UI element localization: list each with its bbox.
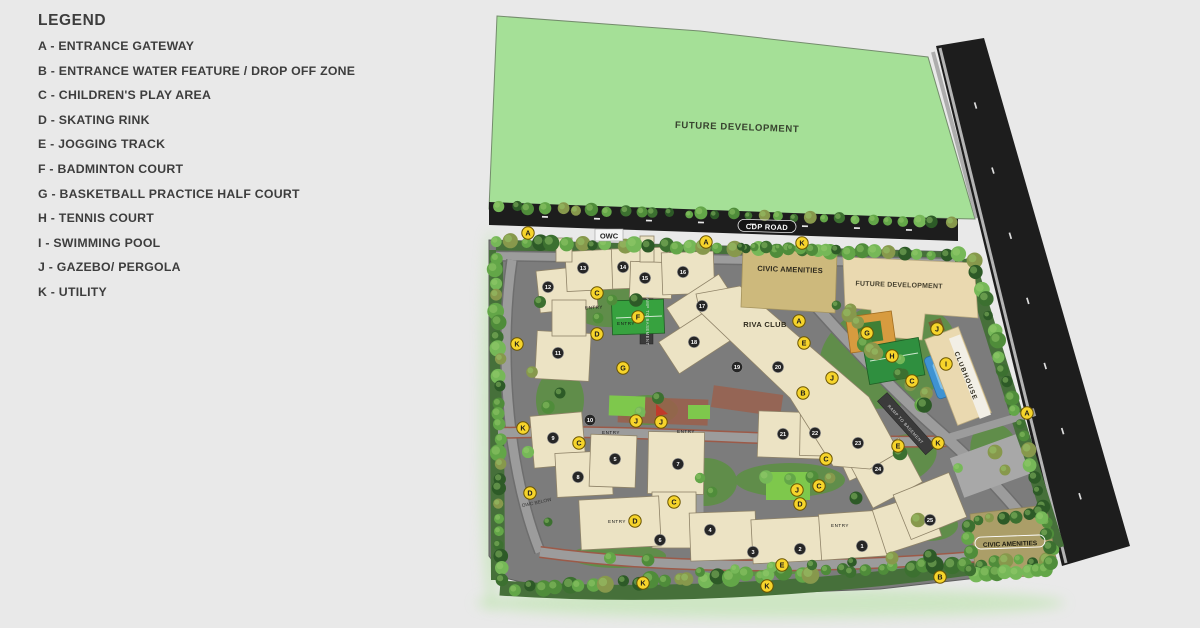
map-marker-letter: A xyxy=(703,238,708,247)
tower-number: 24 xyxy=(875,467,882,473)
tree-icon xyxy=(745,213,749,217)
tree-icon xyxy=(586,204,593,211)
legend-item-d: D - SKATING RINK xyxy=(38,114,355,127)
tree-icon xyxy=(528,368,534,374)
legend-panel: LEGEND A - ENTRANCE GATEWAYB - ENTRANCE … xyxy=(38,12,355,311)
map-marker-letter: D xyxy=(594,330,599,339)
road-dash xyxy=(542,216,548,218)
tree-icon xyxy=(838,564,844,570)
tree-icon xyxy=(921,388,927,394)
tree-icon xyxy=(494,419,500,425)
tower-number: 9 xyxy=(551,436,554,442)
tree-icon xyxy=(661,239,668,246)
tree-icon xyxy=(523,204,529,210)
tree-icon xyxy=(493,316,501,324)
tree-icon xyxy=(492,371,499,378)
map-marker-letter: E xyxy=(896,442,901,451)
road-dash xyxy=(854,227,860,229)
tower-number: 25 xyxy=(927,518,933,524)
tree-icon xyxy=(496,435,502,441)
map-marker-letter: D xyxy=(527,489,532,498)
legend-item-c: C - CHILDREN'S PLAY AREA xyxy=(38,89,355,102)
tree-icon xyxy=(884,218,888,222)
map-marker-letter: J xyxy=(634,417,638,426)
map-marker-letter: E xyxy=(802,339,807,348)
map-marker-letter: E xyxy=(780,561,785,570)
tree-icon xyxy=(643,555,649,561)
tree-icon xyxy=(1024,460,1031,467)
tree-icon xyxy=(835,213,841,219)
ramp-label-1: RAMP TO BASEMENT xyxy=(645,294,650,345)
tree-icon xyxy=(496,382,501,387)
tree-icon xyxy=(523,239,528,244)
tower-number: 21 xyxy=(780,432,786,438)
tower-number: 12 xyxy=(545,285,551,291)
tree-icon xyxy=(681,574,688,581)
entry-label: ENTRY xyxy=(608,519,626,524)
tree-icon xyxy=(696,474,701,479)
tree-icon xyxy=(887,553,893,559)
map-marker-letter: K xyxy=(799,239,805,248)
tree-icon xyxy=(774,212,779,217)
tree-icon xyxy=(636,408,641,413)
tree-icon xyxy=(622,207,628,213)
tree-icon xyxy=(984,312,989,317)
tree-icon xyxy=(821,245,827,251)
road-dash xyxy=(646,220,652,222)
tree-icon xyxy=(1000,555,1007,562)
tree-icon xyxy=(544,518,549,523)
tree-icon xyxy=(492,332,499,339)
tower-number: 22 xyxy=(812,431,818,437)
tree-icon xyxy=(671,243,678,250)
tree-icon xyxy=(946,559,955,568)
tree-icon xyxy=(953,248,961,256)
tree-icon xyxy=(947,218,953,224)
map-marker-letter: B xyxy=(937,573,942,582)
tree-icon xyxy=(1037,513,1043,519)
tree-icon xyxy=(494,399,500,405)
map-marker-letter: H xyxy=(889,352,894,361)
map-marker-letter: K xyxy=(935,439,941,448)
tree-icon xyxy=(966,547,973,554)
tree-icon xyxy=(1034,487,1039,492)
tree-icon xyxy=(761,242,767,248)
tree-icon xyxy=(1001,466,1006,471)
tree-icon xyxy=(599,578,607,586)
map-marker-letter: J xyxy=(795,486,799,495)
tree-icon xyxy=(489,263,497,271)
tree-icon xyxy=(489,305,497,313)
tree-icon xyxy=(540,204,546,210)
tree-icon xyxy=(491,279,497,285)
tree-icon xyxy=(1023,566,1030,573)
tree-icon xyxy=(561,239,568,246)
tree-icon xyxy=(492,237,497,242)
tree-icon xyxy=(648,208,653,213)
tree-icon xyxy=(1032,565,1039,572)
road-dash xyxy=(906,229,912,231)
tree-icon xyxy=(556,389,562,395)
entry-label: ENTRY xyxy=(585,305,603,311)
tree-icon xyxy=(999,566,1006,573)
tree-icon xyxy=(686,212,690,216)
tree-icon xyxy=(608,296,613,301)
tower-number: 1 xyxy=(860,544,863,550)
tower-number: 8 xyxy=(576,475,579,481)
tree-icon xyxy=(853,317,859,323)
tree-icon xyxy=(976,284,984,292)
tree-icon xyxy=(708,488,713,493)
tree-icon xyxy=(822,566,827,571)
road-dash xyxy=(698,222,704,224)
tree-icon xyxy=(724,571,733,580)
tree-icon xyxy=(549,581,556,588)
tree-icon xyxy=(954,464,959,469)
tree-icon xyxy=(761,472,768,479)
map-marker-letter: K xyxy=(514,340,520,349)
tree-icon xyxy=(738,244,742,248)
legend-list: A - ENTRANCE GATEWAYB - ENTRANCE WATER F… xyxy=(38,40,355,299)
tower-number: 10 xyxy=(587,418,593,424)
riva-club-label: RIVA CLUB xyxy=(743,320,787,329)
tower-number: 18 xyxy=(691,340,697,346)
map-marker-letter: A xyxy=(525,229,530,238)
tree-icon xyxy=(870,216,875,221)
tree-icon xyxy=(545,237,553,245)
tree-icon xyxy=(504,235,512,243)
tree-icon xyxy=(851,216,856,221)
tree-icon xyxy=(833,302,838,307)
legend-title: LEGEND xyxy=(38,12,355,30)
tree-icon xyxy=(1030,472,1036,478)
tree-icon xyxy=(493,409,500,416)
tree-icon xyxy=(968,254,976,262)
tree-icon xyxy=(989,325,996,332)
tree-icon xyxy=(900,248,907,255)
tree-icon xyxy=(912,250,918,256)
legend-item-i: I - SWIMMING POOL xyxy=(38,237,355,250)
legend-item-e: E - JOGGING TRACK xyxy=(38,138,355,151)
map-marker-letter: K xyxy=(640,579,646,588)
tree-icon xyxy=(653,393,659,399)
tree-icon xyxy=(980,293,988,301)
tree-icon xyxy=(751,244,755,248)
tree-icon xyxy=(494,202,500,208)
tree-icon xyxy=(696,568,701,573)
tree-icon xyxy=(879,565,884,570)
map-marker-letter: D xyxy=(797,500,802,509)
tree-icon xyxy=(1010,406,1016,412)
legend-item-h: H - TENNIS COURT xyxy=(38,212,355,225)
map-marker-letter: J xyxy=(935,325,939,334)
tower-number: 13 xyxy=(580,266,586,272)
tree-icon xyxy=(564,579,572,587)
tree-icon xyxy=(906,563,914,571)
map-marker-letter: A xyxy=(796,317,801,326)
tree-icon xyxy=(986,514,991,519)
cdp-road-label: CDP ROAD xyxy=(746,222,789,232)
tree-icon xyxy=(711,570,719,578)
tree-icon xyxy=(1015,556,1020,561)
tree-icon xyxy=(496,459,502,465)
map-marker-letter: I xyxy=(945,360,947,369)
legend-item-f: F - BADMINTON COURT xyxy=(38,163,355,176)
tower-number: 11 xyxy=(555,351,561,357)
tower-number: 17 xyxy=(699,304,705,310)
tree-icon xyxy=(966,566,972,572)
tree-icon xyxy=(577,238,584,245)
tree-icon xyxy=(638,208,643,213)
tree-icon xyxy=(643,241,650,248)
tree-icon xyxy=(768,563,773,568)
tree-icon xyxy=(977,561,983,567)
tree-icon xyxy=(543,402,550,409)
tree-icon xyxy=(808,561,813,566)
tree-icon xyxy=(989,446,996,453)
tree-icon xyxy=(526,581,532,587)
tree-icon xyxy=(495,474,501,480)
tree-icon xyxy=(494,500,499,505)
tree-icon xyxy=(981,568,989,576)
tree-icon xyxy=(1006,392,1013,399)
tree-icon xyxy=(848,558,853,563)
tower-number: 16 xyxy=(680,270,686,276)
entry-label: ENTRY xyxy=(617,321,635,326)
tree-icon xyxy=(917,560,924,567)
entry-label: ENTRY xyxy=(602,430,620,435)
map-marker-letter: J xyxy=(659,418,663,427)
road-dash xyxy=(802,225,808,227)
map-marker-letter: A xyxy=(1024,409,1029,418)
tree-icon xyxy=(492,446,500,454)
tree-icon xyxy=(963,533,970,540)
tree-icon xyxy=(927,252,932,257)
tree-icon xyxy=(912,514,919,521)
tree-icon xyxy=(963,521,970,528)
tree-icon xyxy=(491,290,497,296)
tree-icon xyxy=(619,576,625,582)
tree-icon xyxy=(975,517,980,522)
tree-icon xyxy=(1045,557,1052,564)
tree-icon xyxy=(805,212,811,218)
tree-icon xyxy=(603,208,608,213)
tree-icon xyxy=(510,586,516,592)
tree-icon xyxy=(895,369,901,375)
tree-icon xyxy=(631,295,638,302)
tree-icon xyxy=(786,475,792,481)
tree-icon xyxy=(872,348,879,355)
legend-item-b: B - ENTRANCE WATER FEATURE / DROP OFF ZO… xyxy=(38,65,355,78)
tree-icon xyxy=(1028,559,1033,564)
tree-icon xyxy=(513,202,518,207)
entry-label: ENTRY xyxy=(831,523,849,528)
tree-icon xyxy=(728,243,736,251)
tree-icon xyxy=(573,581,579,587)
tree-icon xyxy=(495,550,502,557)
tree-icon xyxy=(731,565,736,570)
tree-icon xyxy=(959,559,966,566)
tower-number: 6 xyxy=(658,538,661,544)
tree-icon xyxy=(1017,420,1022,425)
tree-icon xyxy=(915,216,921,222)
tree-icon xyxy=(925,551,932,558)
tree-icon xyxy=(821,215,825,219)
tree-icon xyxy=(666,209,671,214)
tree-icon xyxy=(832,246,837,251)
tree-icon xyxy=(492,254,498,260)
tree-icon xyxy=(1025,510,1031,516)
tree-icon xyxy=(497,563,504,570)
civic-amenities-top-area xyxy=(741,249,837,313)
tower-number: 3 xyxy=(751,550,754,556)
tower-number: 5 xyxy=(613,457,616,463)
tree-icon xyxy=(729,209,735,215)
tree-icon xyxy=(594,314,599,319)
tree-icon xyxy=(572,207,577,212)
tree-icon xyxy=(791,215,795,219)
legend-item-g: G - BASKETBALL PRACTICE HALF COURT xyxy=(38,188,355,201)
map-marker-letter: K xyxy=(764,582,770,591)
map-marker-letter: B xyxy=(800,389,805,398)
building-block xyxy=(552,300,586,336)
tree-icon xyxy=(1020,432,1025,437)
map-marker-letter: G xyxy=(620,364,626,373)
tree-icon xyxy=(991,334,999,342)
tree-icon xyxy=(534,236,542,244)
tree-icon xyxy=(843,309,851,317)
tree-icon xyxy=(491,342,499,350)
tower-number: 14 xyxy=(620,265,627,271)
legend-item-k: K - UTILITY xyxy=(38,286,355,299)
tree-icon xyxy=(994,353,1000,359)
building-block xyxy=(689,511,757,561)
tree-icon xyxy=(776,245,780,249)
map-marker-letter: D xyxy=(632,517,637,526)
map-marker-letter: C xyxy=(594,289,599,298)
tree-icon xyxy=(883,247,890,254)
tree-icon xyxy=(970,266,977,273)
road-dash xyxy=(594,218,600,220)
tree-icon xyxy=(559,204,565,210)
tree-icon xyxy=(494,541,499,546)
tree-icon xyxy=(788,245,792,249)
map-marker-letter: C xyxy=(576,439,581,448)
map-marker-letter: C xyxy=(909,377,914,386)
map-marker-letter: C xyxy=(671,498,676,507)
tree-icon xyxy=(807,472,813,478)
map-marker-letter: G xyxy=(864,329,870,338)
tree-icon xyxy=(899,218,904,223)
map-marker-letter: F xyxy=(636,313,641,322)
tree-icon xyxy=(537,582,545,590)
tree-icon xyxy=(523,447,529,453)
entry-label: ENTRY xyxy=(677,429,695,434)
tree-icon xyxy=(869,246,876,253)
tree-icon xyxy=(843,248,850,255)
tree-icon xyxy=(861,566,867,572)
tree-icon xyxy=(588,580,595,587)
tree-icon xyxy=(711,211,716,216)
tree-icon xyxy=(497,575,503,581)
tree-icon xyxy=(760,211,766,217)
tree-icon xyxy=(926,217,932,223)
tree-icon xyxy=(999,513,1005,519)
tree-icon xyxy=(1003,377,1009,383)
tower-number: 19 xyxy=(734,365,740,371)
tree-icon xyxy=(740,568,747,575)
tree-icon xyxy=(918,399,926,407)
tree-icon xyxy=(1045,542,1052,549)
tree-icon xyxy=(605,553,611,559)
tree-icon xyxy=(495,528,500,533)
tree-icon xyxy=(942,250,948,256)
tree-icon xyxy=(493,483,500,490)
tree-icon xyxy=(713,244,718,249)
legend-item-j: J - GAZEBO/ PERGOLA xyxy=(38,261,355,274)
legend-item-a: A - ENTRANCE GATEWAY xyxy=(38,40,355,53)
map-marker-letter: C xyxy=(816,482,821,491)
tree-icon xyxy=(851,493,858,500)
building-block xyxy=(751,516,823,564)
tree-icon xyxy=(763,570,769,576)
tree-icon xyxy=(1023,444,1031,452)
tower-number: 20 xyxy=(775,365,781,371)
tower-number: 2 xyxy=(798,547,801,553)
tree-icon xyxy=(846,568,852,574)
tree-icon xyxy=(826,474,831,479)
map-marker-letter: C xyxy=(823,455,828,464)
tree-icon xyxy=(628,238,636,246)
map-marker-letter: J xyxy=(830,374,834,383)
tree-icon xyxy=(1041,529,1047,535)
tree-icon xyxy=(990,557,996,563)
tree-icon xyxy=(997,365,1003,371)
tree-icon xyxy=(1011,512,1018,519)
tree-icon xyxy=(535,297,541,303)
tower-number: 23 xyxy=(855,441,861,447)
tree-icon xyxy=(696,208,702,214)
tree-icon xyxy=(857,245,864,252)
tower-number: 7 xyxy=(676,462,679,468)
owc-label: OWC xyxy=(600,232,619,241)
map-marker-letter: K xyxy=(520,424,526,433)
tree-icon xyxy=(496,354,502,360)
tower-number: 15 xyxy=(642,276,648,282)
tree-icon xyxy=(495,515,500,520)
future-development-parcel xyxy=(489,16,975,219)
tree-icon xyxy=(685,241,692,248)
tree-icon xyxy=(1011,568,1018,575)
tree-icon xyxy=(660,576,666,582)
tree-icon xyxy=(589,241,594,246)
